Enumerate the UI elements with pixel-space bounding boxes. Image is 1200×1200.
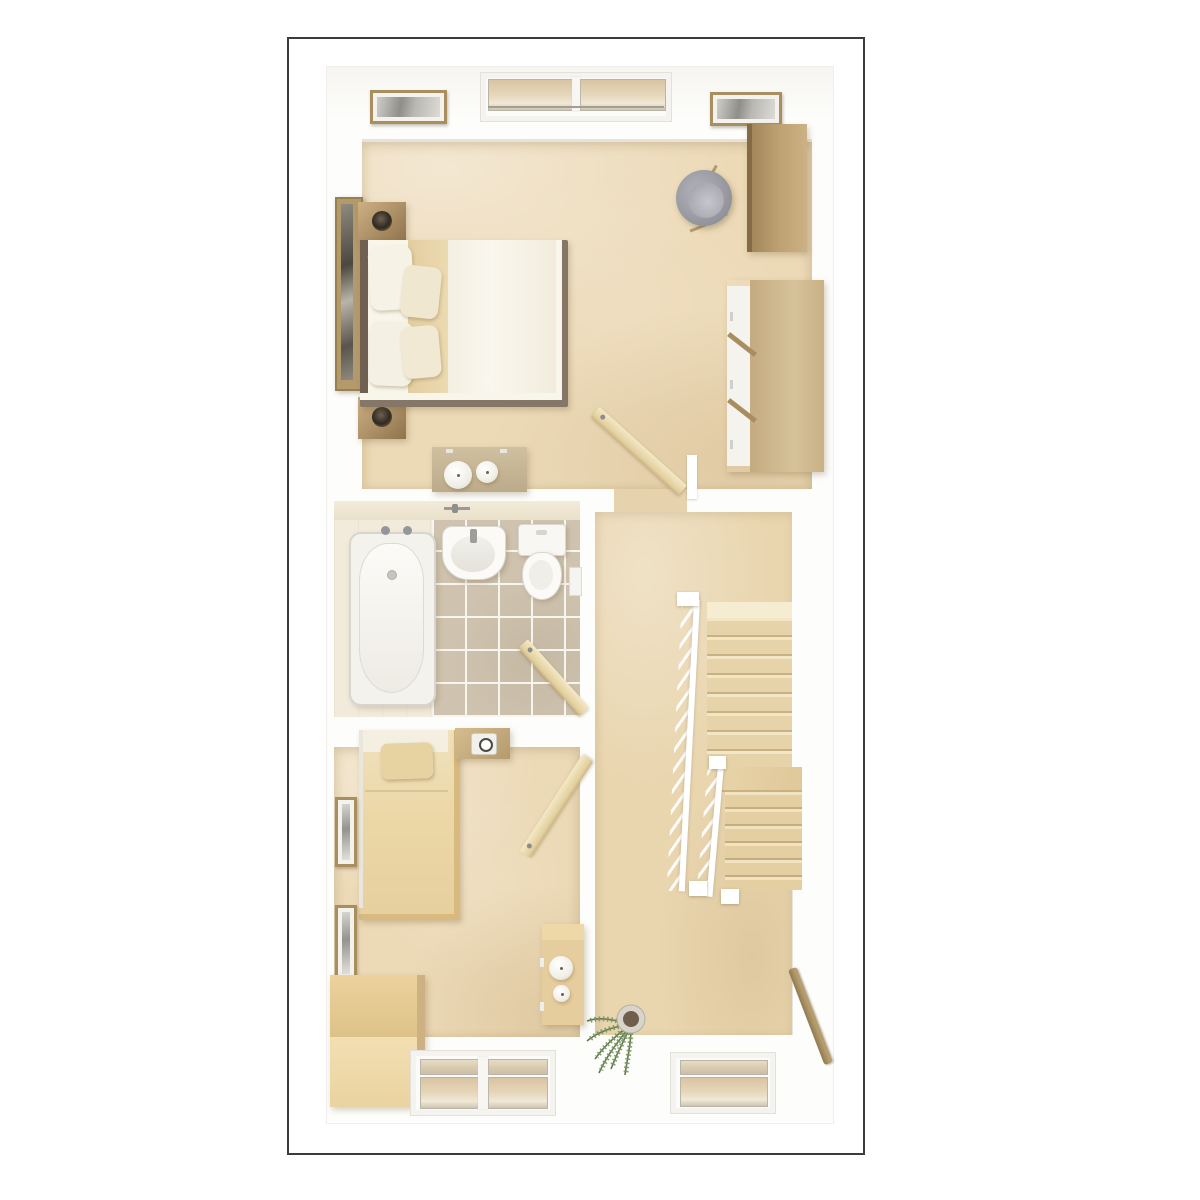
accent-pillow	[400, 324, 442, 379]
potted-plant	[583, 985, 673, 1085]
stair-upper-flight	[707, 618, 792, 767]
bed-pillow	[380, 742, 433, 780]
stair-lower-flight	[725, 792, 802, 890]
table-handle	[500, 449, 507, 453]
window-pane	[680, 1077, 768, 1107]
table-handle	[446, 449, 453, 453]
wardrobe-handle	[730, 312, 733, 321]
stair-winder	[719, 767, 802, 792]
wash-basin	[442, 526, 506, 580]
wardrobe-handle	[730, 380, 733, 389]
alarm-clock	[471, 733, 497, 755]
bath-tap	[403, 526, 412, 535]
newel-post	[689, 881, 707, 896]
floorplan-canvas	[0, 0, 1200, 1200]
table-lamp	[372, 407, 392, 427]
bedroom-window	[480, 72, 672, 122]
newel-post	[677, 592, 699, 606]
plant-soil	[623, 1011, 639, 1027]
table-lamp	[372, 211, 392, 231]
toilet-bowl	[522, 552, 562, 600]
dressing-table	[432, 447, 527, 492]
wardrobe-top	[750, 280, 824, 472]
bed-frame-edge	[359, 730, 363, 908]
desk-edge	[747, 124, 752, 252]
side-table-top	[542, 924, 584, 940]
toilet-seat	[529, 560, 553, 590]
basin-tap	[470, 529, 477, 543]
bench-top	[330, 975, 425, 1037]
stair-top-tread	[707, 602, 792, 618]
white-pouf	[444, 461, 472, 489]
bed-duvet	[448, 240, 556, 393]
chair-seat	[688, 182, 724, 218]
bath-faucet	[452, 504, 458, 513]
window-pane	[488, 1059, 548, 1075]
side-table	[542, 924, 584, 1025]
clock-face	[479, 738, 493, 752]
bathroom-counter	[334, 501, 580, 520]
framed-photo	[342, 912, 350, 974]
wall-art-frame	[710, 92, 782, 126]
wardrobe-handle	[730, 440, 733, 449]
bathtub	[349, 532, 436, 706]
window-mullion	[478, 1057, 488, 1109]
door-jamb	[687, 455, 697, 499]
newel-post	[709, 756, 726, 769]
window-sill-line	[488, 106, 664, 108]
duvet-fold-line	[365, 790, 448, 792]
flush-button	[536, 530, 547, 535]
nightstand	[358, 202, 406, 242]
plan-border-frame	[287, 37, 865, 1155]
wardrobe	[727, 280, 824, 472]
nightstand	[455, 728, 510, 759]
bathroom-radiator	[569, 567, 582, 596]
bath-tap	[381, 526, 390, 535]
single-bed	[359, 730, 460, 920]
accent-pillow	[399, 264, 442, 320]
window-pane	[420, 1077, 480, 1109]
landing-window	[670, 1052, 776, 1114]
window-pane	[488, 1077, 548, 1109]
desk	[747, 124, 807, 252]
framed-photo	[717, 99, 775, 119]
stairwell-void	[792, 602, 833, 767]
bathtub-basin	[359, 543, 424, 693]
mirror-glass	[341, 204, 353, 380]
bathtub-drain	[387, 570, 397, 580]
framed-photo	[342, 804, 350, 860]
desk-chair	[676, 170, 732, 226]
towel-roll	[476, 461, 498, 483]
bedroom2-window	[410, 1050, 556, 1116]
candle	[549, 956, 573, 980]
wall-art-frame	[335, 797, 357, 867]
wall-art-frame	[335, 905, 357, 981]
candle	[553, 985, 570, 1002]
wall-art-frame	[370, 90, 447, 124]
double-bed	[360, 240, 568, 407]
window-pane	[680, 1060, 768, 1075]
drawer-knob	[540, 958, 544, 967]
drawer-knob	[540, 1002, 544, 1011]
newel-post	[721, 889, 739, 904]
bed-headboard	[360, 240, 368, 393]
window-pane	[420, 1059, 480, 1075]
framed-photo	[377, 97, 440, 117]
